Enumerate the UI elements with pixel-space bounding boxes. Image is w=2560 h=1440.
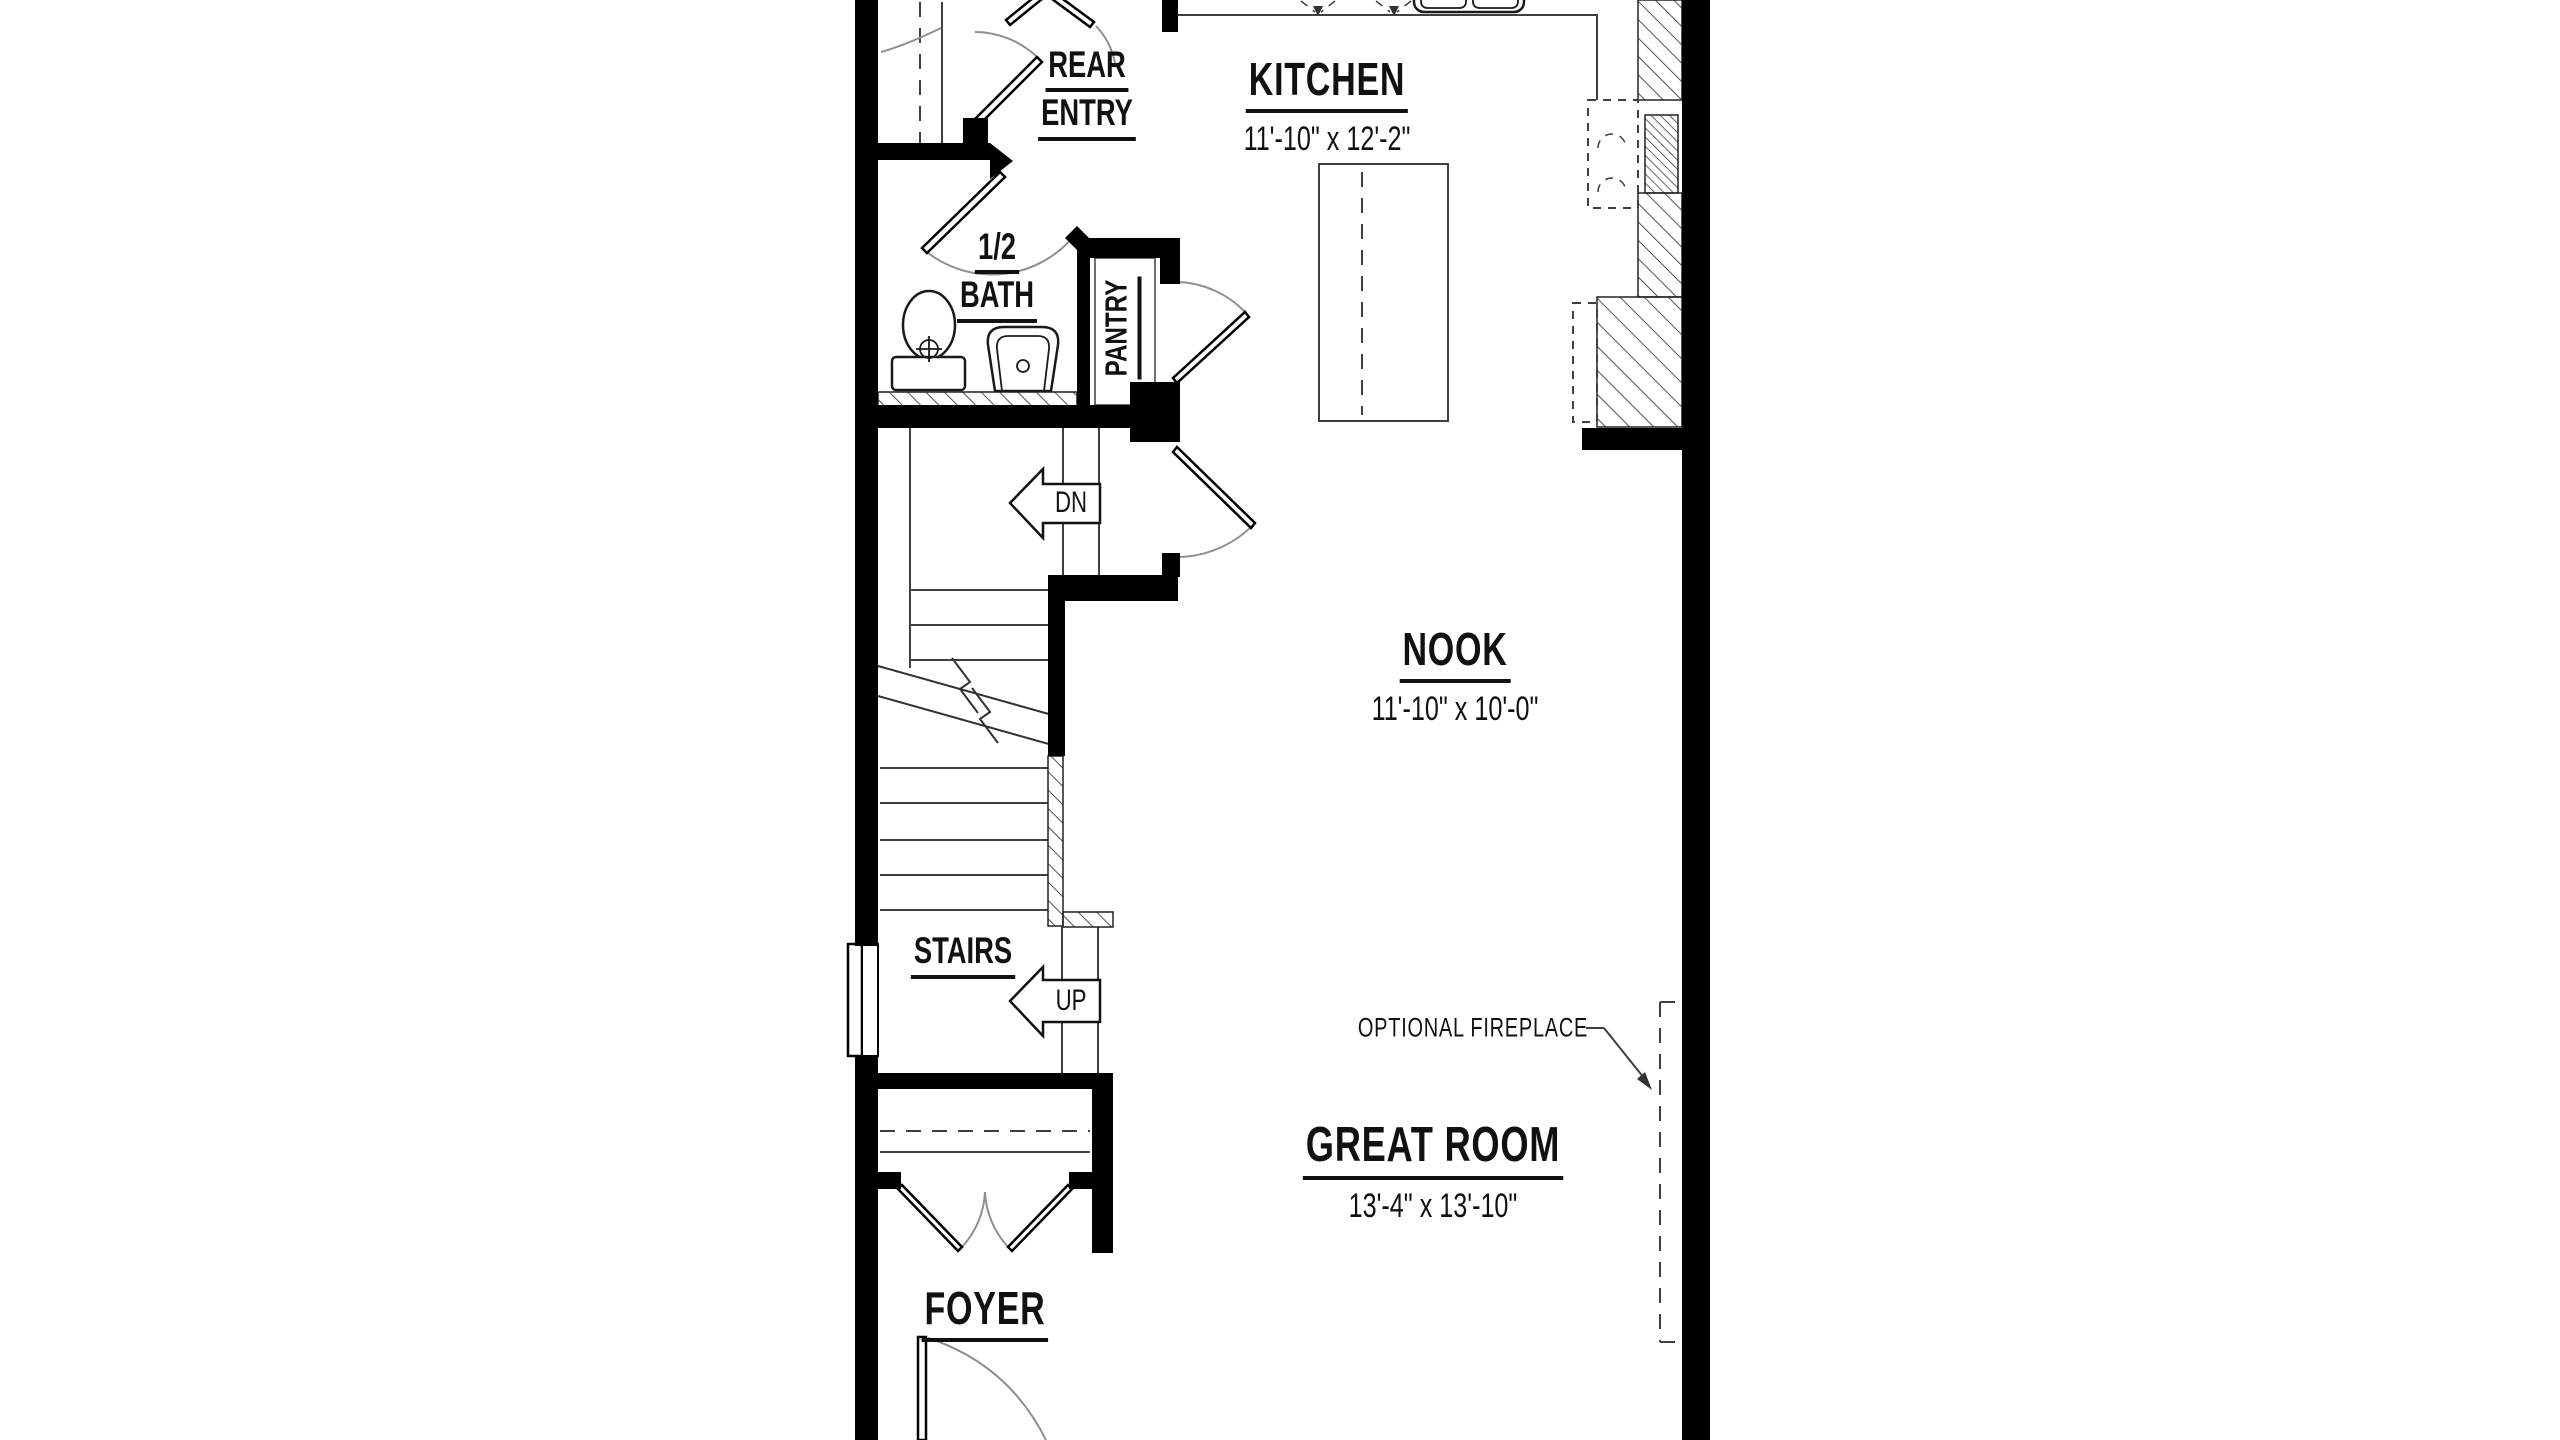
foyer-right-wall bbox=[1092, 1089, 1113, 1253]
nook-label: NOOK 11'-10" x 10'-0" bbox=[1342, 624, 1568, 729]
half-bath-label: 1/2 BATH bbox=[943, 226, 1051, 323]
left-exterior-wall-lower bbox=[855, 1055, 878, 1440]
kitchen-bottom-wall bbox=[1582, 428, 1682, 450]
optional-wall-oven bbox=[1588, 100, 1638, 208]
optional-fireplace bbox=[1660, 1002, 1682, 1342]
down-arrow-label: DN bbox=[1049, 486, 1092, 520]
left-exterior-wall-upper bbox=[855, 0, 878, 946]
pantry-corner-wall bbox=[1130, 382, 1180, 442]
stair-bottom-wall bbox=[855, 1073, 1113, 1089]
door-leaves bbox=[898, 0, 1255, 1440]
stair-break-line bbox=[878, 658, 1063, 748]
stair-right-wall bbox=[1048, 601, 1065, 756]
stair-hall-wall bbox=[1048, 575, 1178, 601]
window bbox=[848, 944, 878, 1056]
kitchen-island bbox=[1319, 164, 1448, 421]
cabinet-swing-marks bbox=[1301, 1, 1411, 16]
basement-door-stub bbox=[1162, 553, 1180, 577]
great-room-label: GREAT ROOM 13'-4" x 13'-10" bbox=[1257, 1118, 1609, 1226]
double-sink bbox=[1414, 0, 1524, 12]
bath-top-wall bbox=[855, 143, 990, 160]
kitchen-wall-stub bbox=[1162, 0, 1178, 32]
foyer-closet bbox=[880, 1131, 1090, 1152]
floor-plan: REAR ENTRY KITCHEN 11'-10" x 12'-2" 1/2 … bbox=[0, 0, 2560, 1440]
kitchen-counter-hatch bbox=[1597, 0, 1682, 427]
closet-door-right bbox=[1008, 1185, 1072, 1251]
foyer-label: FOYER bbox=[899, 1281, 1070, 1342]
stairs-label: STAIRS bbox=[893, 930, 1034, 979]
basement-stair-run bbox=[910, 428, 1099, 668]
front-door bbox=[918, 1337, 926, 1440]
rear-exterior-door-left bbox=[1006, 0, 1042, 25]
up-arrow-label: UP bbox=[1050, 984, 1092, 1018]
dishwasher bbox=[1573, 303, 1597, 422]
rear-entry-closet bbox=[920, 2, 942, 143]
rear-door-hinge-stub bbox=[963, 118, 988, 143]
stair-railing bbox=[1048, 756, 1113, 927]
right-exterior-wall bbox=[1682, 0, 1710, 1440]
pedestal-sink bbox=[988, 327, 1058, 391]
rear-exterior-door-right bbox=[1052, 0, 1094, 27]
fireplace-note: OPTIONAL FIREPLACE bbox=[1317, 1013, 1628, 1044]
closet-door-left bbox=[898, 1185, 962, 1251]
closet-stub-right bbox=[1069, 1172, 1093, 1189]
pantry-label: PANTRY bbox=[1054, 307, 1186, 350]
basement-door bbox=[1173, 447, 1255, 528]
pantry-right-stub bbox=[1160, 238, 1180, 284]
bath-vanity-counter bbox=[878, 392, 1077, 406]
rear-entry-label: REAR ENTRY bbox=[1021, 44, 1153, 141]
closet-stub-left bbox=[877, 1172, 901, 1189]
kitchen-label: KITCHEN 11'-10" x 12'-2" bbox=[1214, 54, 1440, 159]
